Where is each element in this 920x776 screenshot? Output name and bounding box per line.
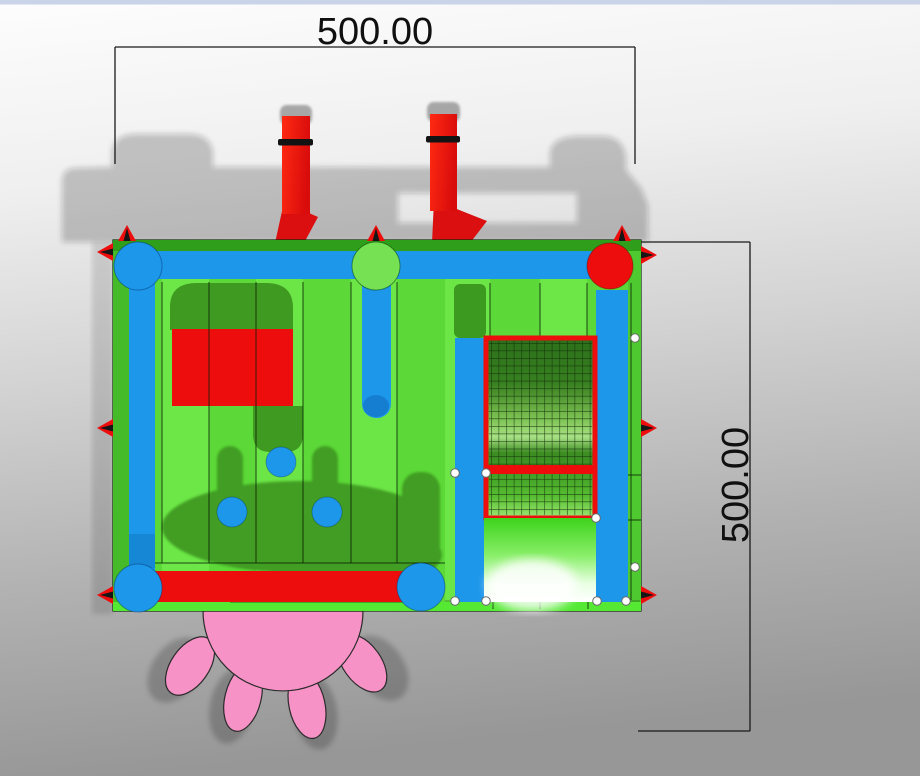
pole-right-tube [430, 114, 457, 211]
slide-exit [484, 518, 596, 611]
knob-bottom-left [114, 564, 162, 612]
tube-center-shade [363, 395, 389, 417]
mattress-block [454, 284, 486, 338]
pole-left-band [278, 139, 313, 146]
dimension-height-value[interactable]: 500.00 [715, 427, 757, 543]
mesh-divider [486, 465, 595, 474]
column-left [455, 338, 484, 602]
dimension-width-value[interactable]: 500.00 [317, 11, 433, 53]
arch-shadow [170, 283, 293, 330]
bottom-bumper [150, 571, 421, 602]
mesh-panel [486, 338, 595, 518]
column-right [596, 290, 628, 602]
pole-left-tube [282, 116, 310, 214]
knob-top-right [587, 243, 633, 289]
tube-left-shade [129, 534, 155, 568]
knob-top-left [114, 242, 162, 290]
bounce-house-model[interactable] [97, 225, 657, 612]
slide-glow [487, 559, 577, 611]
window-top-edge [0, 0, 920, 5]
knob-bottom-center [397, 563, 445, 611]
knob-top-center [352, 242, 400, 290]
right-wall [628, 251, 641, 611]
left-wall [113, 251, 129, 611]
red-obstacle [172, 329, 293, 406]
pole-right-band [426, 136, 460, 143]
cad-viewport[interactable]: 500.00 500.00 [0, 0, 920, 776]
column-shadow [253, 406, 303, 452]
